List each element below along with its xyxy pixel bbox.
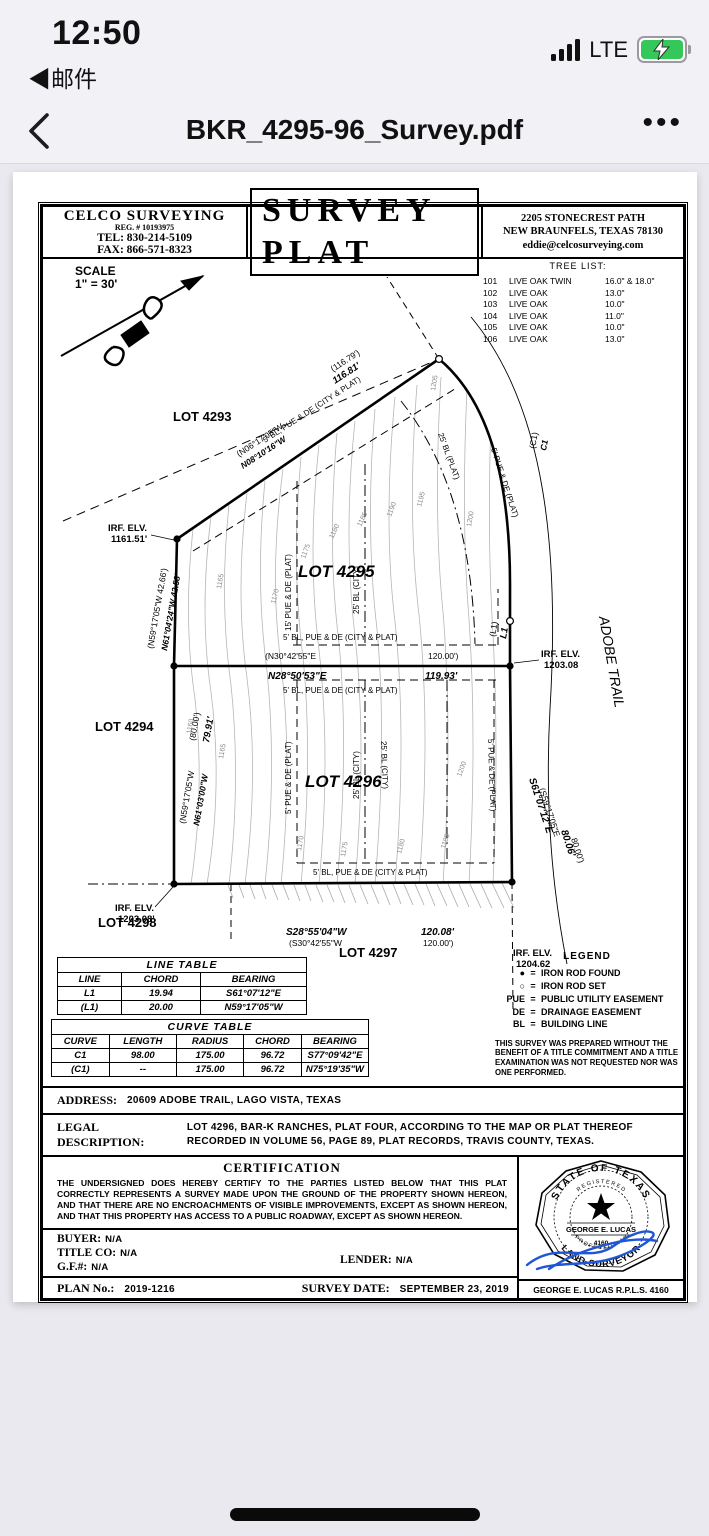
tree-row: 105LIVE OAK10.0": [483, 322, 673, 332]
surveyor-address-block: 2205 STONECREST PATH NEW BRAUNFELS, TEXA…: [483, 207, 683, 257]
address-label: ADDRESS:: [57, 1093, 117, 1108]
address-value: 20609 ADOBE TRAIL, LAGO VISTA, TEXAS: [127, 1095, 341, 1106]
legend: LEGEND ●=IRON ROD FOUND ○=IRON ROD SET P…: [495, 951, 679, 1078]
svg-text:1200: 1200: [466, 511, 476, 528]
buyer-label: BUYER:: [57, 1233, 101, 1245]
tree-row: 104LIVE OAK11.0": [483, 311, 673, 321]
home-indicator[interactable]: [230, 1508, 480, 1521]
lot-4293-label: LOT 4293: [173, 409, 232, 424]
svg-text:25' BL (CITY): 25' BL (CITY): [379, 741, 390, 790]
legend-item: ●=IRON ROD FOUND: [495, 968, 679, 978]
company-street: 2205 STONECREST PATH: [521, 212, 645, 225]
svg-text:5' PUE & DE (PLAT): 5' PUE & DE (PLAT): [284, 741, 293, 814]
battery-charging-icon: [637, 36, 687, 63]
pdf-page[interactable]: CELCO SURVEYING REG. # 10193975 TEL: 830…: [13, 172, 697, 1302]
survey-plat-document: CELCO SURVEYING REG. # 10193975 TEL: 830…: [40, 204, 686, 1301]
lender-label: LENDER:: [340, 1254, 392, 1266]
svg-text:5' BL, PUE & DE (CITY & PLAT): 5' BL, PUE & DE (CITY & PLAT): [283, 686, 398, 695]
more-options-button[interactable]: •••: [642, 106, 683, 140]
surveyor-seal-box: STATE OF TEXAS LAND SURVEYOR R E G I S T…: [519, 1157, 683, 1298]
street-label: ADOBE TRAIL: [596, 614, 628, 709]
slope-hatch: [228, 883, 514, 908]
titleco-value: N/A: [120, 1248, 137, 1259]
property-boundary: [174, 359, 512, 884]
certification-body: THE UNDERSIGNED DOES HEREBY CERTIFY TO T…: [57, 1178, 507, 1222]
legend-item: ○=IRON ROD SET: [495, 981, 679, 991]
company-tel: TEL: 830-214-5109: [97, 232, 192, 244]
iron-rod-markers: [170, 356, 515, 888]
svg-text:120.00'): 120.00'): [428, 651, 459, 661]
svg-text:1185: 1185: [356, 511, 369, 528]
tree-row: 101LIVE OAK TWIN16.0" & 18.0": [483, 276, 673, 286]
svg-text:80.06': 80.06': [558, 829, 577, 859]
svg-text:IRF. ELV.: IRF. ELV.: [108, 523, 147, 534]
svg-text:1203.08: 1203.08: [544, 660, 578, 671]
plan-label: PLAN No.:: [57, 1281, 114, 1295]
svg-text:1170: 1170: [270, 588, 281, 604]
curve-table-row: (C1)--175.0096.72N75°19'35"W: [52, 1063, 369, 1077]
svg-text:25' BL (CITY): 25' BL (CITY): [352, 751, 361, 799]
svg-text:1195: 1195: [416, 491, 427, 507]
plat-title-block: SURVEY PLAT: [248, 207, 483, 257]
iron-rod-found-icon: ●: [495, 968, 525, 978]
survey-date-value: SEPTEMBER 23, 2019: [400, 1284, 509, 1295]
seal-star-icon: [587, 1193, 615, 1220]
line-table-row: L119.94S61°07'12"E: [58, 987, 307, 1001]
legend-title: LEGEND: [495, 951, 679, 962]
line-table-row: (L1)20.00N59°17'05"W: [58, 1001, 307, 1015]
lot-4297-label: LOT 4297: [339, 945, 398, 960]
tree-row: 102LIVE OAK13.0": [483, 288, 673, 298]
registration-seal: STATE OF TEXAS LAND SURVEYOR R E G I S T…: [519, 1157, 683, 1276]
plan-value: 2019-1216: [124, 1284, 175, 1295]
svg-text:1185: 1185: [440, 833, 451, 850]
tree-list: TREE LIST: 101LIVE OAK TWIN16.0" & 18.0"…: [483, 261, 673, 345]
surveyor-name-line: GEORGE E. LUCAS R.P.L.S. 4160: [519, 1279, 683, 1298]
lot-4296-dims: (80.00') 79.91' (N59°17'05"W N61°03'00"W…: [177, 711, 497, 877]
company-email: eddie@celcosurveying.com: [523, 239, 644, 252]
svg-text:1161.51': 1161.51': [111, 534, 147, 545]
address-row: ADDRESS: 20609 ADOBE TRAIL, LAGO VISTA, …: [43, 1088, 683, 1115]
document-title: BKR_4295-96_Survey.pdf: [0, 114, 709, 146]
svg-text:5' BL, PUE & DE (CITY & PLAT): 5' BL, PUE & DE (CITY & PLAT): [313, 868, 428, 877]
signal-strength-icon: [551, 39, 580, 61]
buyer-value: N/A: [105, 1234, 122, 1245]
survey-date-label: SURVEY DATE:: [302, 1281, 390, 1295]
seal-name: GEORGE E. LUCAS: [566, 1225, 636, 1234]
certification-title: CERTIFICATION: [57, 1160, 507, 1176]
company-fax: FAX: 866-571-8323: [97, 244, 192, 256]
svg-text:1200: 1200: [456, 761, 468, 778]
svg-text:5' BL, PUE & DE (CITY & PLAT): 5' BL, PUE & DE (CITY & PLAT): [261, 375, 362, 445]
svg-text:5' BL, PUE & DE (CITY & PLAT): 5' BL, PUE & DE (CITY & PLAT): [283, 633, 398, 642]
svg-text:C1: C1: [538, 439, 550, 452]
svg-text:25' BL (CITY): 25' BL (CITY): [352, 566, 361, 614]
plan-date-row: PLAN No.:2019-1216 SURVEY DATE:SEPTEMBER…: [43, 1278, 517, 1298]
svg-text:120.00'): 120.00'): [423, 938, 454, 948]
svg-text:(N30°42'55"E: (N30°42'55"E: [265, 651, 316, 661]
legal-value: LOT 4296, BAR-K RANCHES, PLAT FOUR, ACCO…: [187, 1121, 683, 1149]
svg-text:15' PUE & DE (PLAT): 15' PUE & DE (PLAT): [284, 554, 293, 631]
svg-text:5' PUE & DE (PLAT): 5' PUE & DE (PLAT): [486, 739, 498, 812]
svg-text:1203.08': 1203.08': [118, 914, 155, 925]
lot-4294-label: LOT 4294: [95, 719, 154, 734]
lender-value: N/A: [396, 1255, 413, 1266]
svg-text:IRF. ELV.: IRF. ELV.: [115, 903, 154, 914]
parties-section: BUYER:N/A TITLE CO:N/A G.F.#:N/A LENDER:…: [43, 1230, 517, 1278]
line-table: LINE TABLE LINE CHORD BEARING L119.94S61…: [57, 957, 307, 1015]
curve-table-title: CURVE TABLE: [52, 1020, 369, 1035]
legend-item: PUE=PUBLIC UTILITY EASEMENT: [495, 994, 679, 1004]
title-commitment-note: THIS SURVEY WAS PREPARED WITHOUT THE BEN…: [495, 1039, 679, 1078]
gf-value: N/A: [91, 1262, 108, 1273]
titleco-label: TITLE CO:: [57, 1247, 116, 1259]
svg-text:(S30°42'55"W: (S30°42'55"W: [289, 938, 342, 948]
back-to-mail-indicator[interactable]: ◀邮件: [28, 60, 97, 94]
svg-text:1175: 1175: [340, 841, 350, 857]
svg-text:S28°55'04"W: S28°55'04"W: [286, 927, 348, 938]
gf-label: G.F.#:: [57, 1261, 87, 1273]
svg-text:N28°50'53"E: N28°50'53"E: [268, 671, 327, 682]
tree-list-title: TREE LIST:: [483, 261, 673, 271]
plat-header: CELCO SURVEYING REG. # 10193975 TEL: 830…: [43, 207, 683, 259]
svg-text:1205: 1205: [430, 375, 440, 392]
svg-text:L1: L1: [498, 627, 511, 640]
svg-text:120.08': 120.08': [421, 927, 455, 938]
lot-4295-label: LOT 4295: [298, 562, 375, 581]
svg-text:1175: 1175: [300, 543, 312, 560]
ios-chrome: 12:50 ◀邮件 LTE BKR_4295-96_Survey.pdf •••: [0, 0, 709, 164]
network-type-label: LTE: [589, 37, 628, 63]
svg-text:119.93': 119.93': [425, 671, 458, 682]
legal-description-row: LEGAL DESCRIPTION: LOT 4296, BAR-K RANCH…: [43, 1115, 683, 1157]
company-reg: REG. # 10193975: [115, 223, 174, 232]
legend-item: BL=BUILDING LINE: [495, 1019, 679, 1029]
status-bar: 12:50 ◀邮件 LTE: [0, 0, 709, 100]
lot-4296-label: LOT 4296: [305, 772, 382, 791]
legend-item: DE=DRAINAGE EASEMENT: [495, 1007, 679, 1017]
company-city: NEW BRAUNFELS, TEXAS 78130: [503, 225, 663, 238]
tree-row: 106LIVE OAK13.0": [483, 334, 673, 344]
legal-label: LEGAL DESCRIPTION:: [57, 1120, 177, 1150]
curve-table: CURVE TABLE CURVE LENGTH RADIUS CHORD BE…: [51, 1019, 369, 1077]
svg-text:1165: 1165: [218, 743, 228, 759]
curve-table-row: C198.00175.0096.72S77°09'42"E: [52, 1049, 369, 1063]
svg-text:25' BL (PLAT): 25' BL (PLAT): [436, 432, 461, 482]
surveyor-contact-block: CELCO SURVEYING REG. # 10193975 TEL: 830…: [43, 207, 248, 257]
svg-text:1190: 1190: [386, 501, 398, 518]
iron-rod-set-icon: ○: [495, 981, 525, 991]
svg-text:IRF. ELV.: IRF. ELV.: [541, 649, 580, 660]
plat-drawing-area: SCALE 1" = 30' TREE LIST: 101LIVE OAK TW…: [43, 259, 683, 1088]
easement-lines-4295: [193, 387, 498, 645]
clock: 12:50: [52, 14, 141, 53]
pdf-viewer-navbar: BKR_4295-96_Survey.pdf •••: [0, 100, 709, 162]
road-edge-line: [471, 317, 567, 964]
line-table-title: LINE TABLE: [58, 958, 307, 973]
svg-text:79.91': 79.91': [201, 715, 216, 743]
certification-section: CERTIFICATION THE UNDERSIGNED DOES HEREB…: [43, 1157, 517, 1230]
middle-line-dims: 5' BL, PUE & DE (CITY & PLAT) (N30°42'55…: [265, 633, 459, 695]
svg-text:1180: 1180: [328, 523, 341, 540]
scale-note: SCALE 1" = 30': [75, 265, 117, 291]
tree-row: 103LIVE OAK10.0": [483, 299, 673, 309]
